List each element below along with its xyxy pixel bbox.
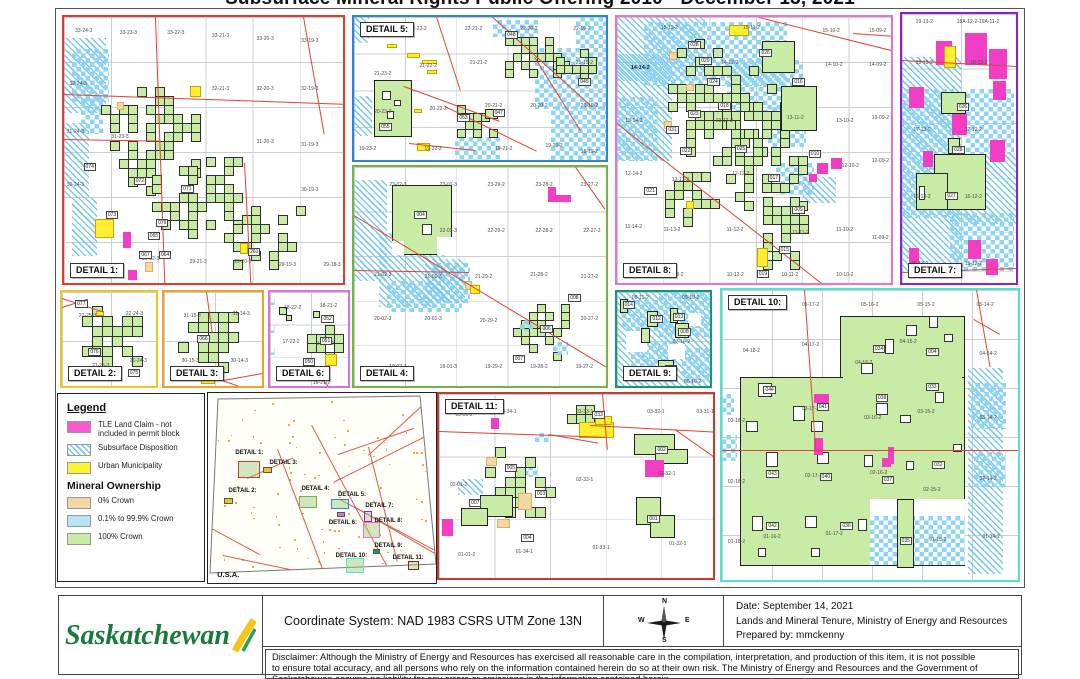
detail-11-panel: 03-01-203-34-103-33-103-32-103-31-102-01…: [437, 392, 715, 580]
permit-block: [668, 102, 678, 112]
permit-block: [173, 123, 183, 133]
town-dot: [314, 477, 316, 479]
legend-item: TLE Land Claim - not included in permit …: [67, 421, 195, 438]
permit-block: [146, 123, 156, 133]
town-dot: [235, 502, 237, 504]
town-dot: [218, 440, 220, 442]
legend-ownership-items: 0% Crown0.1% to 99.9% Crown100% Crown: [67, 497, 195, 545]
excluded-hole: [929, 316, 938, 328]
town-dot: [242, 419, 244, 421]
permit-block: [122, 326, 133, 337]
legend-panel: Legend TLE Land Claim - not included in …: [57, 393, 205, 582]
block-number-label: 064: [159, 251, 171, 259]
town-dot: [224, 559, 226, 561]
permit-block: [735, 192, 745, 202]
detail-9-label: DETAIL 9:: [623, 366, 677, 381]
township-label: 16-21-2: [313, 380, 330, 386]
township-label: 01-17-2: [826, 531, 843, 537]
tle-land-claim-block: [993, 81, 1006, 100]
legend-ownership-item: 0% Crown: [67, 497, 195, 509]
block-number-label: 043: [766, 470, 778, 478]
township-label: 01-15-2: [929, 537, 946, 543]
block-number-label: 076: [88, 348, 100, 356]
block-number-label: 006: [540, 325, 552, 333]
block-number-label: 042: [766, 522, 778, 530]
town-dot: [421, 501, 423, 503]
permit-block: [269, 251, 279, 261]
township-label: 22-21-2: [465, 26, 482, 32]
compass-north-label: N: [662, 598, 667, 605]
township-label: 11-09-2: [872, 235, 889, 241]
partial-crown-area: [81, 97, 103, 134]
block-number-label: 038: [876, 394, 888, 402]
inset-marker-box: [346, 558, 364, 572]
permit-block: [485, 467, 496, 478]
block-number-label: 009: [792, 206, 804, 214]
town-dot: [416, 499, 418, 501]
township-label: 05-17-2: [802, 302, 819, 308]
excluded-hole: [805, 516, 817, 528]
permit-block: [762, 120, 772, 130]
town-dot: [276, 516, 278, 518]
town-dot: [253, 507, 255, 509]
town-dot: [416, 452, 418, 454]
block-number-label: 028: [688, 41, 700, 49]
town-dot: [358, 536, 360, 538]
township-label: 03-14-2: [980, 415, 997, 421]
township-label: 18-12-2: [970, 60, 987, 66]
township-label: 17-12-2: [965, 127, 982, 133]
township-label: 11-14-2: [625, 224, 642, 230]
permit-block: [224, 233, 234, 243]
permit-block: [763, 215, 773, 225]
inset-marker-label: DETAIL 5:: [338, 492, 366, 498]
township-label: 21-21-2: [470, 60, 487, 66]
permit-block: [798, 156, 808, 166]
zero-crown-area: [686, 84, 694, 92]
block-number-label: 016: [792, 78, 804, 86]
map-organization: Lands and Mineral Tenure, Ministry of En…: [736, 615, 1021, 630]
township-label: 33-23-3: [120, 30, 137, 36]
permit-block: [713, 156, 723, 166]
town-dot: [387, 552, 389, 554]
tle-land-claim-block: [556, 195, 571, 202]
permit-block: [677, 48, 687, 58]
inset-marker-label: DETAIL 8:: [374, 518, 402, 524]
tle-land-claim-block: [831, 158, 842, 169]
permit-block: [588, 65, 597, 74]
inset-marker-box: [363, 522, 380, 538]
township-label: 19-20-2: [546, 143, 563, 149]
block-number-label: 007: [469, 499, 481, 507]
permit-block: [188, 202, 198, 212]
permit-area: [286, 315, 292, 322]
township-label: 01-33-1: [592, 545, 609, 551]
block-number-label: 055: [379, 123, 391, 131]
block-number-label: 024: [707, 78, 719, 86]
tle-land-claim-block: [923, 151, 933, 167]
permit-block: [580, 65, 589, 74]
block-number-label: 002: [655, 446, 667, 454]
township-label: 18-21-2: [320, 303, 337, 309]
township-label: 20-22-2: [430, 106, 447, 112]
permit-block: [287, 242, 297, 252]
inset-marker-box: [299, 496, 317, 508]
permit-block: [278, 215, 288, 225]
highway-line: [277, 449, 333, 584]
block-number-label: 014: [623, 301, 635, 309]
block-number-label: 047: [493, 109, 505, 117]
permit-area: [897, 499, 915, 569]
zero-crown-area: [486, 457, 497, 466]
permit-block: [206, 157, 216, 167]
block-number-label: 067: [139, 251, 151, 259]
road-line: [223, 373, 263, 381]
footer: Saskatchewan Coordinate System: NAD 1983…: [58, 595, 1022, 675]
detail-10-label: DETAIL 10:: [728, 295, 787, 310]
permit-block: [686, 66, 696, 76]
township-label: 20-19-2: [581, 103, 598, 109]
permit-block: [334, 343, 344, 353]
inset-marker-box: [224, 498, 233, 505]
road-line: [575, 167, 605, 210]
detail-3-label: DETAIL 3:: [170, 366, 224, 381]
town-dot: [338, 530, 340, 532]
saskatchewan-logo-text: Saskatchewan: [65, 620, 230, 652]
permit-block: [188, 193, 198, 203]
township-label: 01-32-1: [669, 541, 686, 547]
detail-8-panel: 15-13-215-11-215-10-215-09-214-14-214-12…: [615, 15, 893, 285]
block-number-label: 073: [106, 211, 118, 219]
township-label: 13-11-2: [787, 115, 804, 121]
block-number-label: 045: [578, 78, 590, 86]
permit-block: [188, 166, 198, 176]
permit-block: [513, 53, 522, 62]
township-label: 33-19-3: [301, 38, 318, 44]
zero-crown-area: [669, 52, 677, 60]
permit-block: [695, 93, 705, 103]
compass-cell: N S E W: [604, 596, 724, 647]
town-dot: [278, 524, 280, 526]
legend-item-label: 0.1% to 99.9% Crown: [98, 515, 173, 524]
detail-7-label: DETAIL 7:: [908, 263, 962, 278]
permit-block: [529, 69, 538, 78]
permit-block: [753, 156, 763, 166]
township-label: 15-10-2: [823, 28, 840, 34]
town-dot: [289, 467, 291, 469]
inset-marker-label: DETAIL 2:: [229, 488, 257, 494]
compass-east-label: E: [685, 617, 690, 624]
township-label: 02-18-2: [728, 479, 745, 485]
town-dot: [348, 513, 350, 515]
inset-marker-box: [373, 549, 380, 555]
tle-land-claim-block: [968, 240, 981, 259]
permit-block: [561, 312, 570, 321]
township-label: 19-29-2: [485, 364, 502, 370]
township-label: 04-15-2: [900, 339, 917, 345]
town-dot: [425, 471, 427, 473]
block-number-label: 052: [321, 315, 333, 323]
tle-land-claim-block: [442, 519, 453, 536]
township-label: 05-14-2: [977, 302, 994, 308]
township-label: 12-14-2: [625, 171, 642, 177]
detail-3-panel: 31-15-331-14-330-15-330-14-3066DETAIL 3:: [162, 290, 264, 388]
township-label: 19-22-2: [425, 146, 442, 152]
township-label: 12-13-2: [672, 177, 689, 183]
township-label: 21-22-2: [420, 63, 437, 69]
permit-block: [564, 65, 573, 74]
permit-block: [722, 156, 732, 166]
permit-block: [561, 320, 570, 329]
township-label: 10-12-2: [727, 272, 744, 278]
detail-8-label: DETAIL 8:: [623, 263, 677, 278]
township-label: 20-02-3: [374, 316, 391, 322]
block-number-label: 029: [699, 57, 711, 65]
permit-block: [260, 224, 270, 234]
inset-marker-box: [238, 461, 261, 478]
tle-land-claim-block: [817, 163, 828, 174]
permit-block: [146, 159, 156, 169]
town-dot: [324, 552, 326, 554]
block-number-label: 033: [592, 411, 604, 419]
block-number-label: 017: [768, 174, 780, 182]
permit-block: [164, 114, 174, 124]
permit-block: [233, 193, 243, 203]
block-number-label: 025: [735, 145, 747, 153]
township-label: 30-24-3: [67, 182, 84, 188]
township-label: 13-09-2: [872, 115, 889, 121]
block-number-label: 012: [650, 315, 662, 323]
urban-municipality: [427, 70, 437, 74]
map-gap: [688, 313, 701, 326]
permit-block: [128, 123, 138, 133]
town-dot: [422, 464, 424, 466]
tle-land-claim-block: [548, 187, 556, 202]
legend-swatch: [67, 497, 91, 509]
permit-block: [683, 208, 693, 218]
map-gap: [437, 237, 455, 255]
township-label: 19-27-2: [576, 364, 593, 370]
block-number-label: 036: [840, 522, 852, 530]
town-dot: [260, 442, 262, 444]
town-dot: [334, 530, 336, 532]
partial-crown-area: [270, 298, 275, 306]
permit-block: [556, 57, 565, 66]
township-label: 19-13-2: [916, 19, 933, 25]
township-label: 20-23-2: [374, 109, 391, 115]
permit-block: [798, 165, 808, 175]
township-label: 02-01-2: [450, 482, 467, 488]
excluded-hole: [876, 403, 888, 415]
township-label: 01-18-2: [728, 539, 745, 545]
town-dot: [304, 474, 306, 476]
town-dot: [421, 452, 423, 454]
township-label: 08-10-2: [682, 295, 699, 301]
township-label: 10-10-2: [836, 272, 853, 278]
town-dot: [344, 444, 346, 446]
town-dot: [297, 548, 299, 550]
tle-land-claim-block: [491, 418, 499, 429]
permit-block: [789, 174, 799, 184]
township-label: 16-12-2: [965, 194, 982, 200]
town-dot: [308, 558, 310, 560]
permit-block: [218, 322, 229, 333]
township-label: 19-21-2: [495, 146, 512, 152]
permit-area: [313, 311, 320, 319]
coordinate-system-cell: Coordinate System: NAD 1983 CSRS UTM Zon…: [263, 596, 604, 647]
town-dot: [338, 548, 340, 550]
road-line: [973, 319, 1000, 335]
township-label: 32-19-3: [301, 86, 318, 92]
permit-block: [296, 206, 306, 216]
township-label: 22-24-3: [126, 311, 143, 317]
block-number-label: 031: [666, 126, 678, 134]
town-dot: [349, 466, 351, 468]
urban-municipality: [414, 109, 422, 113]
block-number-label: 007: [513, 355, 525, 363]
permit-block: [325, 325, 335, 335]
block-number-label: 008: [568, 294, 580, 302]
detail-1-panel: 33-24-333-23-333-22-333-21-333-20-333-19…: [62, 15, 345, 285]
permit-block: [580, 49, 589, 58]
town-dot: [413, 452, 415, 454]
road-line: [303, 17, 325, 134]
block-number-label: 050: [303, 358, 315, 366]
urban-municipality: [387, 44, 397, 48]
disclaimer-line-1: Disclaimer: Although the Ministry of Ene…: [272, 652, 1012, 663]
permit-block: [767, 84, 777, 94]
town-dot: [293, 420, 295, 422]
permit-block: [525, 457, 536, 468]
tle-land-claim-block: [909, 87, 924, 109]
township-label: 03-18-2: [728, 418, 745, 424]
township-label: 11-13-2: [664, 227, 681, 233]
permit-block: [799, 215, 809, 225]
legend-swatch: [67, 421, 91, 433]
urban-municipality: [325, 354, 337, 366]
township-label: 29-18-3: [323, 262, 340, 268]
zero-crown-area: [145, 262, 153, 273]
permit-block: [505, 69, 514, 78]
township-label: 22-25-3: [79, 313, 96, 319]
permit-block: [744, 201, 754, 211]
tle-land-claim-block: [128, 270, 136, 281]
township-label: 18A-12-2-19A-11-2: [957, 19, 999, 25]
legend-ownership-item: 100% Crown: [67, 533, 195, 545]
block-number-label: 013: [673, 313, 685, 321]
township-label: 03-33-1: [576, 409, 593, 415]
block-number-label: 077: [75, 300, 87, 308]
township-label: 16-13-2: [913, 194, 930, 200]
township-label: 14-10-2: [825, 62, 842, 68]
township-label: 15-11-2: [743, 25, 760, 31]
block-number-label: 261: [248, 248, 260, 256]
township-label: 02-14-2: [980, 476, 997, 482]
block-number-label: 074: [84, 163, 96, 171]
block-number-label: 035: [900, 537, 912, 545]
township-label: 14-14-2: [631, 65, 650, 71]
excluded-hole: [858, 519, 867, 531]
permit-block: [749, 66, 759, 76]
block-number-label: 033: [926, 383, 938, 391]
permit-block: [763, 206, 773, 216]
permit-block: [535, 507, 546, 518]
excluded-hole: [394, 100, 400, 106]
permit-block: [695, 84, 705, 94]
block-number-label: 076: [156, 219, 168, 227]
block-number-label: 010: [809, 150, 821, 158]
permit-block: [197, 202, 207, 212]
township-label: 06-10-2: [684, 379, 701, 385]
permit-block: [515, 477, 526, 488]
permit-block: [457, 129, 466, 138]
detail-7-panel: 19-13-218A-12-2-19A-11-218-13-218-12-217…: [900, 12, 1018, 285]
permit-block: [545, 312, 554, 321]
permit-block: [251, 233, 261, 243]
subsurface-disposition-area: [425, 259, 465, 303]
tle-land-claim-block: [986, 259, 997, 275]
township-label: 13-14-2: [625, 118, 642, 124]
township-label: 31-23-3: [111, 134, 128, 140]
excluded-hole: [953, 444, 962, 453]
town-dot: [421, 519, 423, 521]
permit-area: [641, 328, 649, 343]
block-number-label: 004: [414, 211, 426, 219]
township-label: 22-19-2: [573, 26, 590, 32]
township-label: 17-13-2: [913, 127, 930, 133]
township-label: 20-27-2: [581, 316, 598, 322]
tle-land-claim-block: [123, 232, 131, 248]
permit-area: [461, 508, 488, 526]
permit-block: [128, 141, 138, 151]
coordinate-system-text: Coordinate System: NAD 1983 CSRS UTM Zon…: [284, 614, 582, 628]
township-label: 02-15-2: [923, 487, 940, 493]
town-dot: [228, 440, 230, 442]
permit-block: [762, 129, 772, 139]
permit-block: [164, 150, 174, 160]
detail-6-panel: 18-22-218-21-217-22-217-21-216-21-205205…: [268, 290, 350, 388]
legend-ownership-item: 0.1% to 99.9% Crown: [67, 515, 195, 527]
permit-block: [233, 157, 243, 167]
block-number-label: 003: [535, 490, 547, 498]
township-label: 03-31-1: [697, 409, 714, 415]
map-gap: [668, 344, 685, 359]
permit-block: [278, 242, 288, 252]
block-number-label: 004: [521, 534, 533, 542]
township-label: 22-27-2: [583, 228, 600, 234]
township-label: 14-12-2: [721, 60, 738, 66]
highway-line: [208, 526, 260, 555]
permit-block: [206, 175, 216, 185]
permit-block: [191, 132, 201, 142]
zero-crown-area: [497, 519, 511, 528]
partial-crown-area: [870, 516, 965, 565]
township-label: 18-19-2: [581, 149, 598, 155]
permit-block: [683, 217, 693, 227]
township-label: 32-21-3: [212, 86, 229, 92]
township-label: 13-12-2: [716, 118, 733, 124]
permit-block: [132, 316, 143, 327]
permit-block: [173, 132, 183, 142]
permit-block: [251, 206, 261, 216]
excluded-hole: [746, 421, 758, 433]
township-label: 29-21-3: [190, 259, 207, 265]
legend-items: TLE Land Claim - not included in permit …: [67, 421, 195, 474]
excluded-hole: [906, 461, 915, 470]
township-label: 15-09-2: [869, 28, 886, 34]
township-label: 04-16-2: [855, 360, 872, 366]
block-number-label: 071: [181, 185, 193, 193]
